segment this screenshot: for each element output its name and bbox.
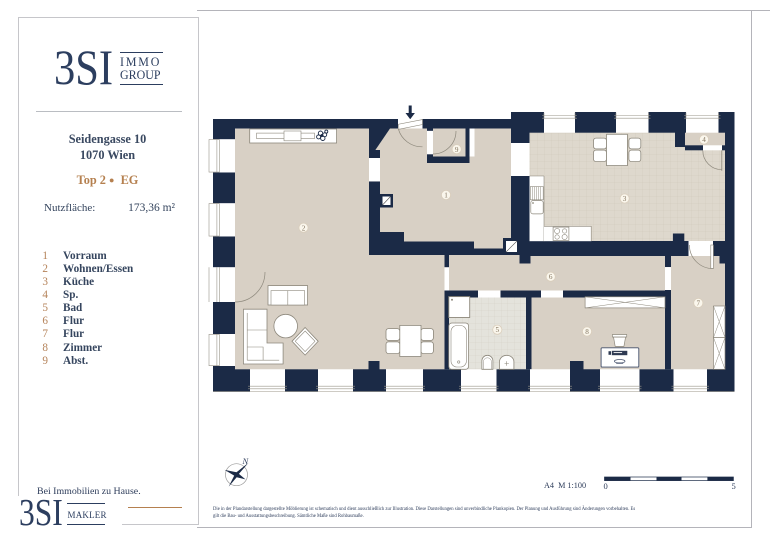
svg-text:A4 M 1:100: A4 M 1:100: [544, 481, 586, 490]
svg-text:4: 4: [702, 136, 706, 144]
svg-text:2: 2: [302, 224, 306, 232]
svg-text:8: 8: [585, 328, 589, 336]
svg-text:1: 1: [444, 192, 448, 200]
svg-text:5: 5: [496, 326, 500, 334]
svg-text:5: 5: [732, 481, 736, 491]
svg-text:0: 0: [604, 481, 608, 491]
svg-text:6: 6: [549, 273, 553, 281]
svg-text:9: 9: [455, 146, 459, 154]
svg-text:3: 3: [623, 195, 627, 203]
svg-text:N: N: [242, 456, 250, 466]
svg-text:7: 7: [697, 300, 701, 308]
